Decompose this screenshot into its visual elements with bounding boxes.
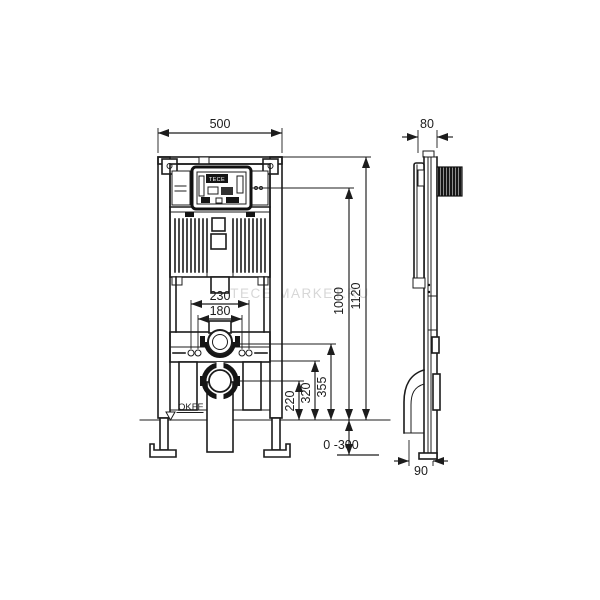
side-drain-bend-inner <box>411 384 424 433</box>
dim-label-80: 80 <box>420 117 434 131</box>
cistern-foot-left <box>172 277 182 285</box>
dim-label-355: 355 <box>315 377 329 398</box>
dim-label-220: 220 <box>283 391 297 412</box>
flush-bend-connection <box>200 321 240 356</box>
drain-clamp-notch-bottom <box>217 394 224 400</box>
side-rivet2 <box>428 291 430 293</box>
dim-label-180: 180 <box>210 304 231 318</box>
left-rail <box>158 157 170 418</box>
actuation-opening-upper <box>212 218 225 231</box>
right-rail <box>270 157 282 418</box>
dim-label-320: 320 <box>299 383 313 404</box>
flush-pipe-opening <box>208 330 232 354</box>
flush-clamp-ear-left <box>200 336 205 347</box>
fixing-bolt-outer-left <box>188 350 194 356</box>
flush-clamp-ear-right <box>235 336 240 347</box>
rail-clip-right <box>246 212 255 217</box>
technical-drawing-page: TECE-MARKET.RU <box>0 0 600 600</box>
rail-clip-left <box>185 212 194 217</box>
module-part4 <box>226 197 239 203</box>
wall-flush-block <box>437 167 462 196</box>
left-leg <box>160 418 168 450</box>
left-compartment <box>172 171 190 205</box>
module-part1 <box>208 187 218 194</box>
side-view <box>404 151 462 460</box>
okff-label: OKFF <box>178 402 204 413</box>
dim-label-500: 500 <box>210 117 231 131</box>
dim-label-1000: 1000 <box>332 287 346 315</box>
module-part3 <box>201 197 210 203</box>
side-bracket-lower <box>433 374 440 410</box>
actuation-opening-lower <box>211 234 226 249</box>
side-bracket-upper <box>432 337 439 353</box>
flush-module: TECE <box>192 167 251 209</box>
dimension-width-500: 500 <box>158 117 282 153</box>
dim-label-230: 230 <box>210 289 231 303</box>
module-bar-right <box>237 176 243 193</box>
module-bar-left <box>199 176 204 196</box>
module-part2 <box>221 187 233 195</box>
right-leg <box>272 418 280 450</box>
side-rivet1 <box>428 284 430 286</box>
dim-label-0-300: 0 -300 <box>323 438 358 452</box>
module-part5 <box>216 198 222 203</box>
side-cistern-bottom-cap <box>413 278 425 288</box>
dim-label-1120: 1120 <box>349 283 363 310</box>
tece-installation-drawing: TECE-MARKET.RU <box>0 0 600 600</box>
dim-label-90: 90 <box>414 464 428 478</box>
drain-outlet <box>200 362 240 452</box>
fixing-bolt-inner-left <box>195 350 201 356</box>
fixing-bolt-inner-right <box>239 350 245 356</box>
drain-bore <box>209 370 231 392</box>
module-brand-label: TECE <box>209 177 225 183</box>
drain-clamp-notch-top <box>217 362 224 368</box>
support-strut-right <box>243 362 261 410</box>
side-foot <box>419 453 437 459</box>
dimension-depth-80: 80 <box>402 117 453 153</box>
cistern-foot-right <box>258 277 268 285</box>
side-top-cap <box>423 151 434 157</box>
top-bracket <box>199 157 209 164</box>
side-panel-bracket <box>418 170 424 186</box>
dimension-adjust-range: 0 -300 <box>323 420 379 455</box>
okff-floor-marker: OKFF <box>166 402 204 420</box>
fixing-bolt-outer-right <box>246 350 252 356</box>
side-drain-bend-outer <box>404 370 424 433</box>
